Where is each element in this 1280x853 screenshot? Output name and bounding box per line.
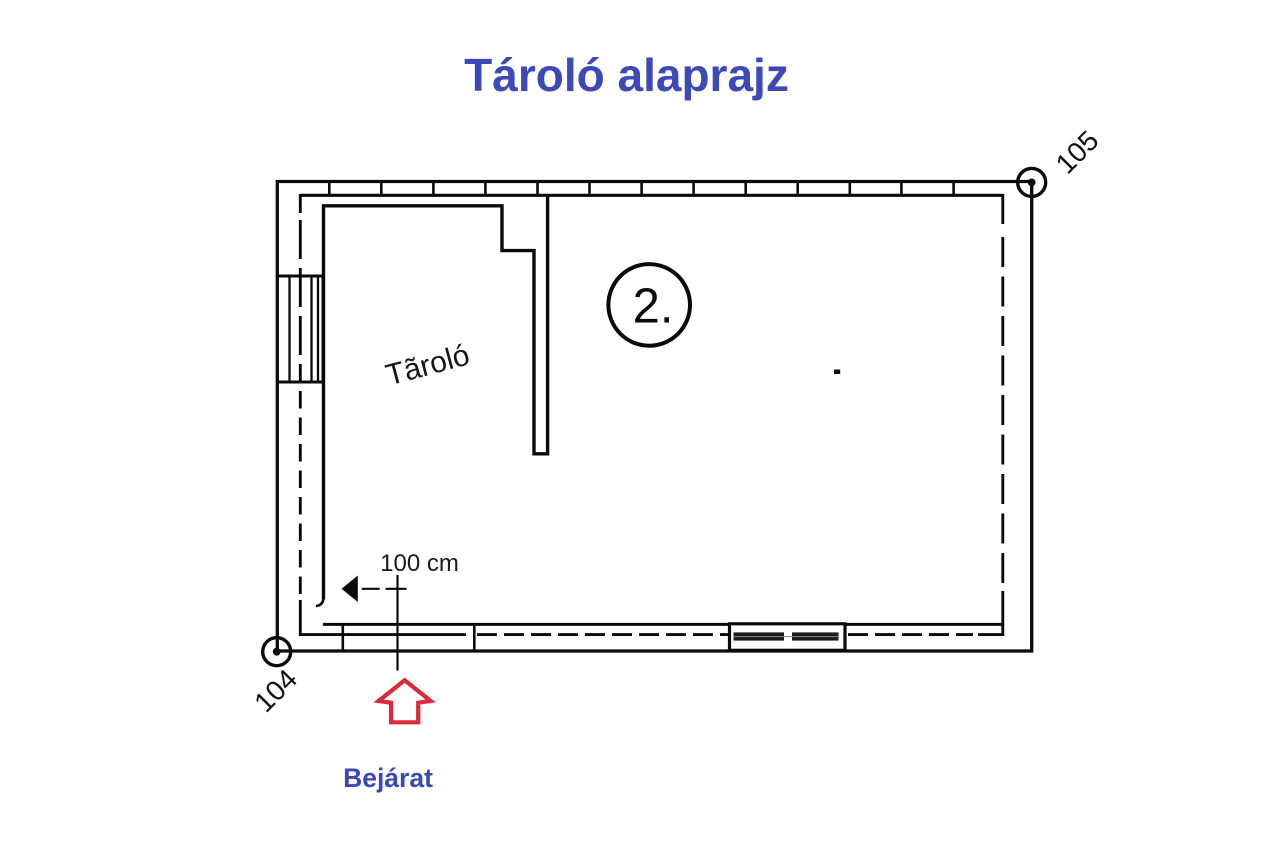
- svg-text:2.: 2.: [633, 280, 674, 334]
- svg-text:Bejárat: Bejárat: [343, 763, 433, 793]
- svg-text:100 cm: 100 cm: [380, 550, 459, 577]
- svg-text:Tároló alaprajz: Tároló alaprajz: [464, 49, 789, 101]
